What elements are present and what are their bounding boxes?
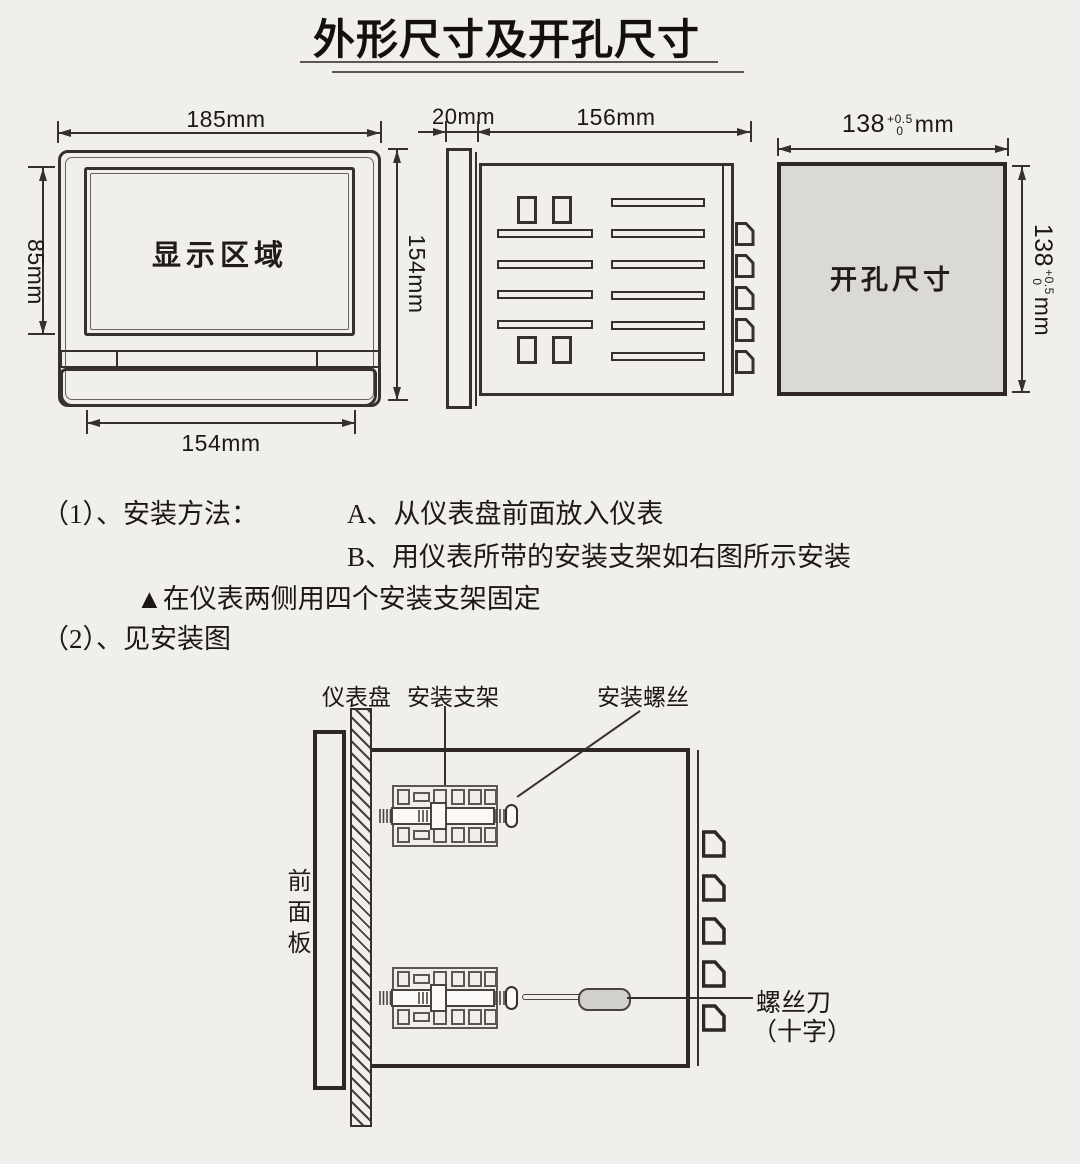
dimension-line (418, 131, 750, 133)
screwdriver-shaft (522, 994, 584, 1000)
screwdriver-handle (578, 988, 631, 1011)
terminal-tab (702, 960, 726, 988)
terminal-tab (735, 286, 755, 310)
cutout-height-value: 138 (1029, 224, 1058, 267)
manual-page: 外形尺寸及开孔尺寸 185mm 显示区域 85mm 154mm 154mm 20… (0, 0, 1080, 1164)
vent-slot (611, 291, 705, 300)
terminal-tab (735, 350, 755, 374)
dimension-line (396, 150, 398, 400)
extension-tick (777, 138, 779, 156)
cutout-width-unit: mm (915, 111, 954, 138)
vent-slot (497, 320, 593, 329)
panel-label: 仪表盘 (322, 678, 391, 712)
terminal-tab (702, 830, 726, 858)
terminal-tab (702, 1004, 726, 1032)
side-bezel-bar (446, 148, 472, 409)
page-title: 外形尺寸及开孔尺寸 (313, 6, 700, 67)
arrowhead-right (737, 128, 750, 136)
vent-slot (497, 260, 593, 269)
terminal-tab (735, 222, 755, 246)
extension-tick (86, 410, 88, 434)
cutout-width-dimension-label: 138+0.50mm (838, 110, 958, 139)
extension-tick (354, 410, 356, 434)
arrowhead-left (778, 145, 791, 153)
vent-square (517, 196, 537, 224)
arrowhead-up (393, 150, 401, 163)
vent-slot (497, 229, 593, 238)
extension-tick (28, 166, 55, 168)
extension-tick (380, 121, 382, 143)
display-area-label: 显示区域 (84, 232, 356, 274)
cutout-label: 开孔尺寸 (777, 258, 1007, 297)
arrowhead-up (39, 168, 47, 181)
cutout-height-unit: mm (1030, 297, 1057, 336)
front-display-height-label: 85mm (22, 222, 50, 322)
extension-tick (28, 333, 55, 335)
terminal-tab (702, 917, 726, 945)
arrowhead-right (367, 129, 380, 137)
instruction-item-1: （1）、安装方法： (42, 492, 258, 531)
install-terminal-strip-line (697, 750, 699, 1066)
front-width-dimension-label: 185mm (161, 106, 291, 133)
instruction-item-2: （2）、见安装图 (42, 617, 231, 656)
mounting-bracket (378, 966, 518, 1030)
vent-slot (611, 321, 705, 330)
extension-tick (57, 121, 59, 143)
vent-slot (611, 352, 705, 361)
instruction-note: ▲在仪表两侧用四个安装支架固定 (136, 577, 541, 616)
mounting-bracket (378, 784, 518, 848)
side-bezel-inner-line (475, 152, 477, 406)
cutout-height-dimension-label: 138+0.50mm (1023, 220, 1063, 340)
front-height-label: 154mm (403, 214, 431, 334)
screw-label: 安装螺丝 (597, 678, 689, 712)
leader-line-screwdriver (627, 997, 753, 999)
title-underline-2 (332, 71, 744, 73)
side-body-depth-label: 156mm (570, 104, 662, 131)
arrowhead-up (1018, 167, 1026, 180)
arrowhead-left (87, 419, 100, 427)
extension-tick (1007, 138, 1009, 156)
install-front-bezel (313, 730, 346, 1090)
extension-tick (445, 121, 447, 142)
panel-wall-hatched (350, 708, 372, 1127)
terminal-tab (735, 318, 755, 342)
tolerance-stack: +0.50 (887, 113, 913, 137)
extension-tick (388, 399, 408, 401)
vent-square (517, 336, 537, 364)
vent-slot (497, 290, 593, 299)
vent-square (552, 336, 572, 364)
dimension-line (58, 132, 380, 134)
dimension-line (87, 422, 355, 424)
instruction-step-a: A、从仪表盘前面放入仪表 (347, 492, 664, 531)
vent-slot (611, 229, 705, 238)
terminal-tab (702, 874, 726, 902)
extension-tick (750, 121, 752, 142)
tolerance-stack: +0.50 (1031, 269, 1055, 295)
side-bezel-depth-label: 20mm (432, 104, 490, 130)
bracket-label: 安装支架 (407, 678, 499, 712)
front-bottom-width-label: 154mm (156, 430, 286, 457)
arrowhead-left (58, 129, 71, 137)
title-underline-1 (300, 61, 718, 63)
dimension-line (778, 148, 1008, 150)
front-bottom-bar (60, 368, 377, 407)
cutout-width-value: 138 (842, 110, 885, 139)
side-terminal-strip-line (722, 166, 724, 394)
vent-slot (611, 260, 705, 269)
extension-tick (1012, 391, 1030, 393)
instruction-step-b: B、用仪表所带的安装支架如右图所示安装 (347, 535, 851, 574)
extension-tick (1012, 165, 1030, 167)
front-panel-label: 前面板 (279, 868, 314, 961)
vent-slot (611, 198, 705, 207)
arrowhead-left (477, 128, 490, 136)
extension-tick (477, 121, 479, 142)
vent-square (552, 196, 572, 224)
terminal-tab (735, 254, 755, 278)
screwdriver-type-label: （十字） (752, 1012, 852, 1048)
extension-tick (388, 148, 408, 150)
